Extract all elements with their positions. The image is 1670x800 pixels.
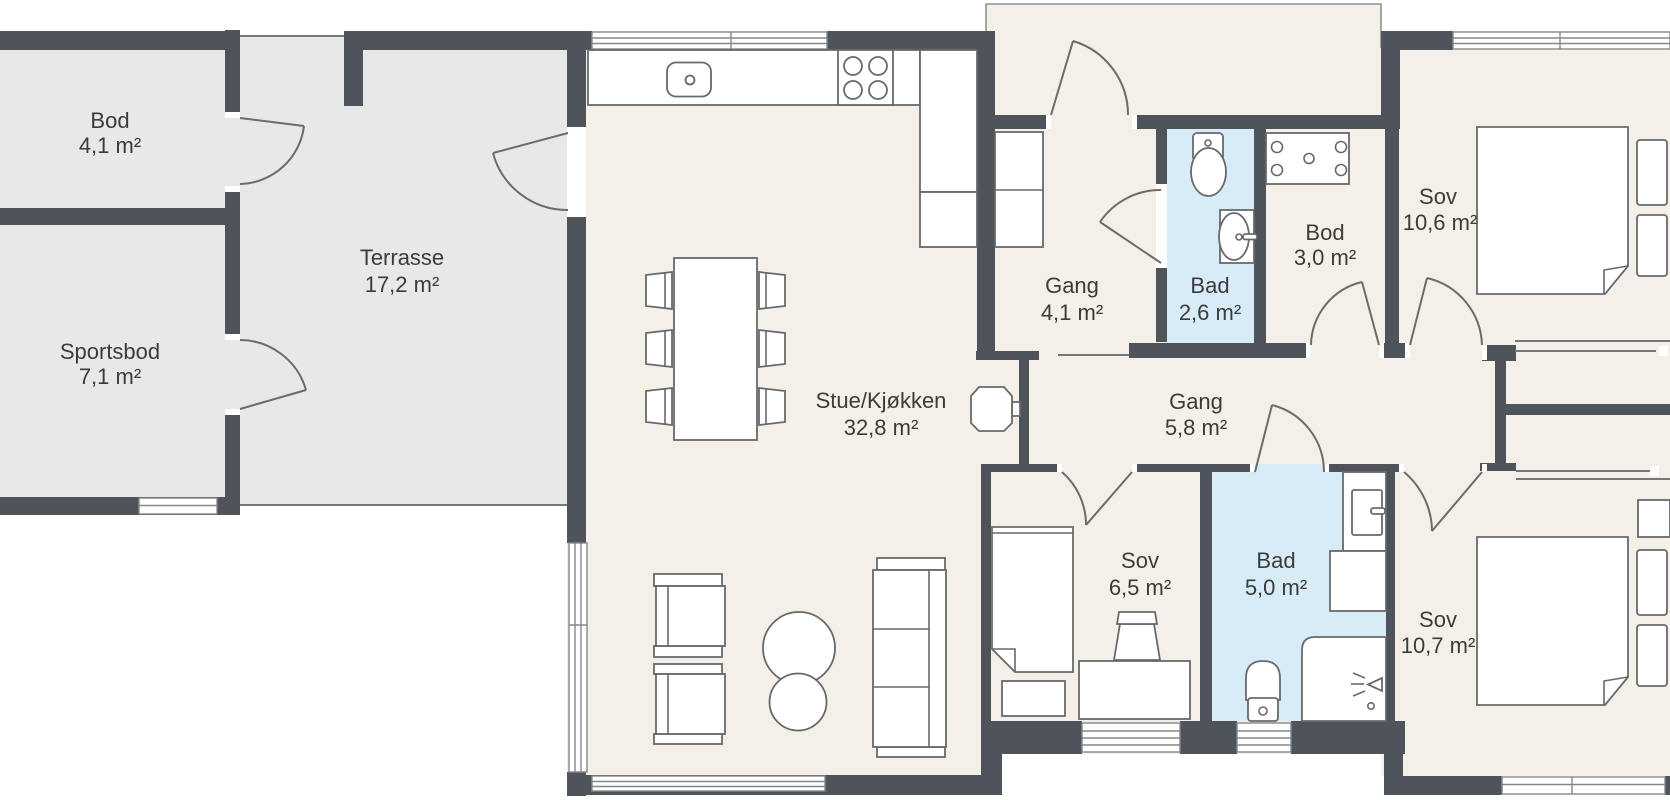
svg-text:17,2 m²: 17,2 m² xyxy=(365,272,440,297)
svg-text:Bad: Bad xyxy=(1256,548,1295,573)
svg-text:Gang: Gang xyxy=(1169,389,1223,414)
svg-text:3,0 m²: 3,0 m² xyxy=(1294,245,1356,270)
svg-text:2,6 m²: 2,6 m² xyxy=(1179,300,1241,325)
svg-text:Sportsbod: Sportsbod xyxy=(60,339,160,364)
svg-text:Bod: Bod xyxy=(90,108,129,133)
svg-text:7,1 m²: 7,1 m² xyxy=(79,364,141,389)
svg-text:Bod: Bod xyxy=(1305,220,1344,245)
svg-text:Sov: Sov xyxy=(1419,184,1457,209)
svg-text:6,5 m²: 6,5 m² xyxy=(1109,575,1171,600)
svg-text:5,0 m²: 5,0 m² xyxy=(1245,575,1307,600)
svg-text:4,1 m²: 4,1 m² xyxy=(79,133,141,158)
svg-text:Terrasse: Terrasse xyxy=(360,245,444,270)
svg-text:Sov: Sov xyxy=(1419,607,1457,632)
svg-text:10,7 m²: 10,7 m² xyxy=(1401,633,1476,658)
svg-text:Stue/Kjøkken: Stue/Kjøkken xyxy=(816,388,947,413)
svg-text:10,6 m²: 10,6 m² xyxy=(1403,210,1478,235)
svg-text:32,8 m²: 32,8 m² xyxy=(844,415,919,440)
svg-text:Sov: Sov xyxy=(1121,548,1159,573)
svg-text:Gang: Gang xyxy=(1045,273,1099,298)
svg-text:4,1 m²: 4,1 m² xyxy=(1041,300,1103,325)
svg-text:Bad: Bad xyxy=(1190,273,1229,298)
svg-text:5,8 m²: 5,8 m² xyxy=(1165,415,1227,440)
